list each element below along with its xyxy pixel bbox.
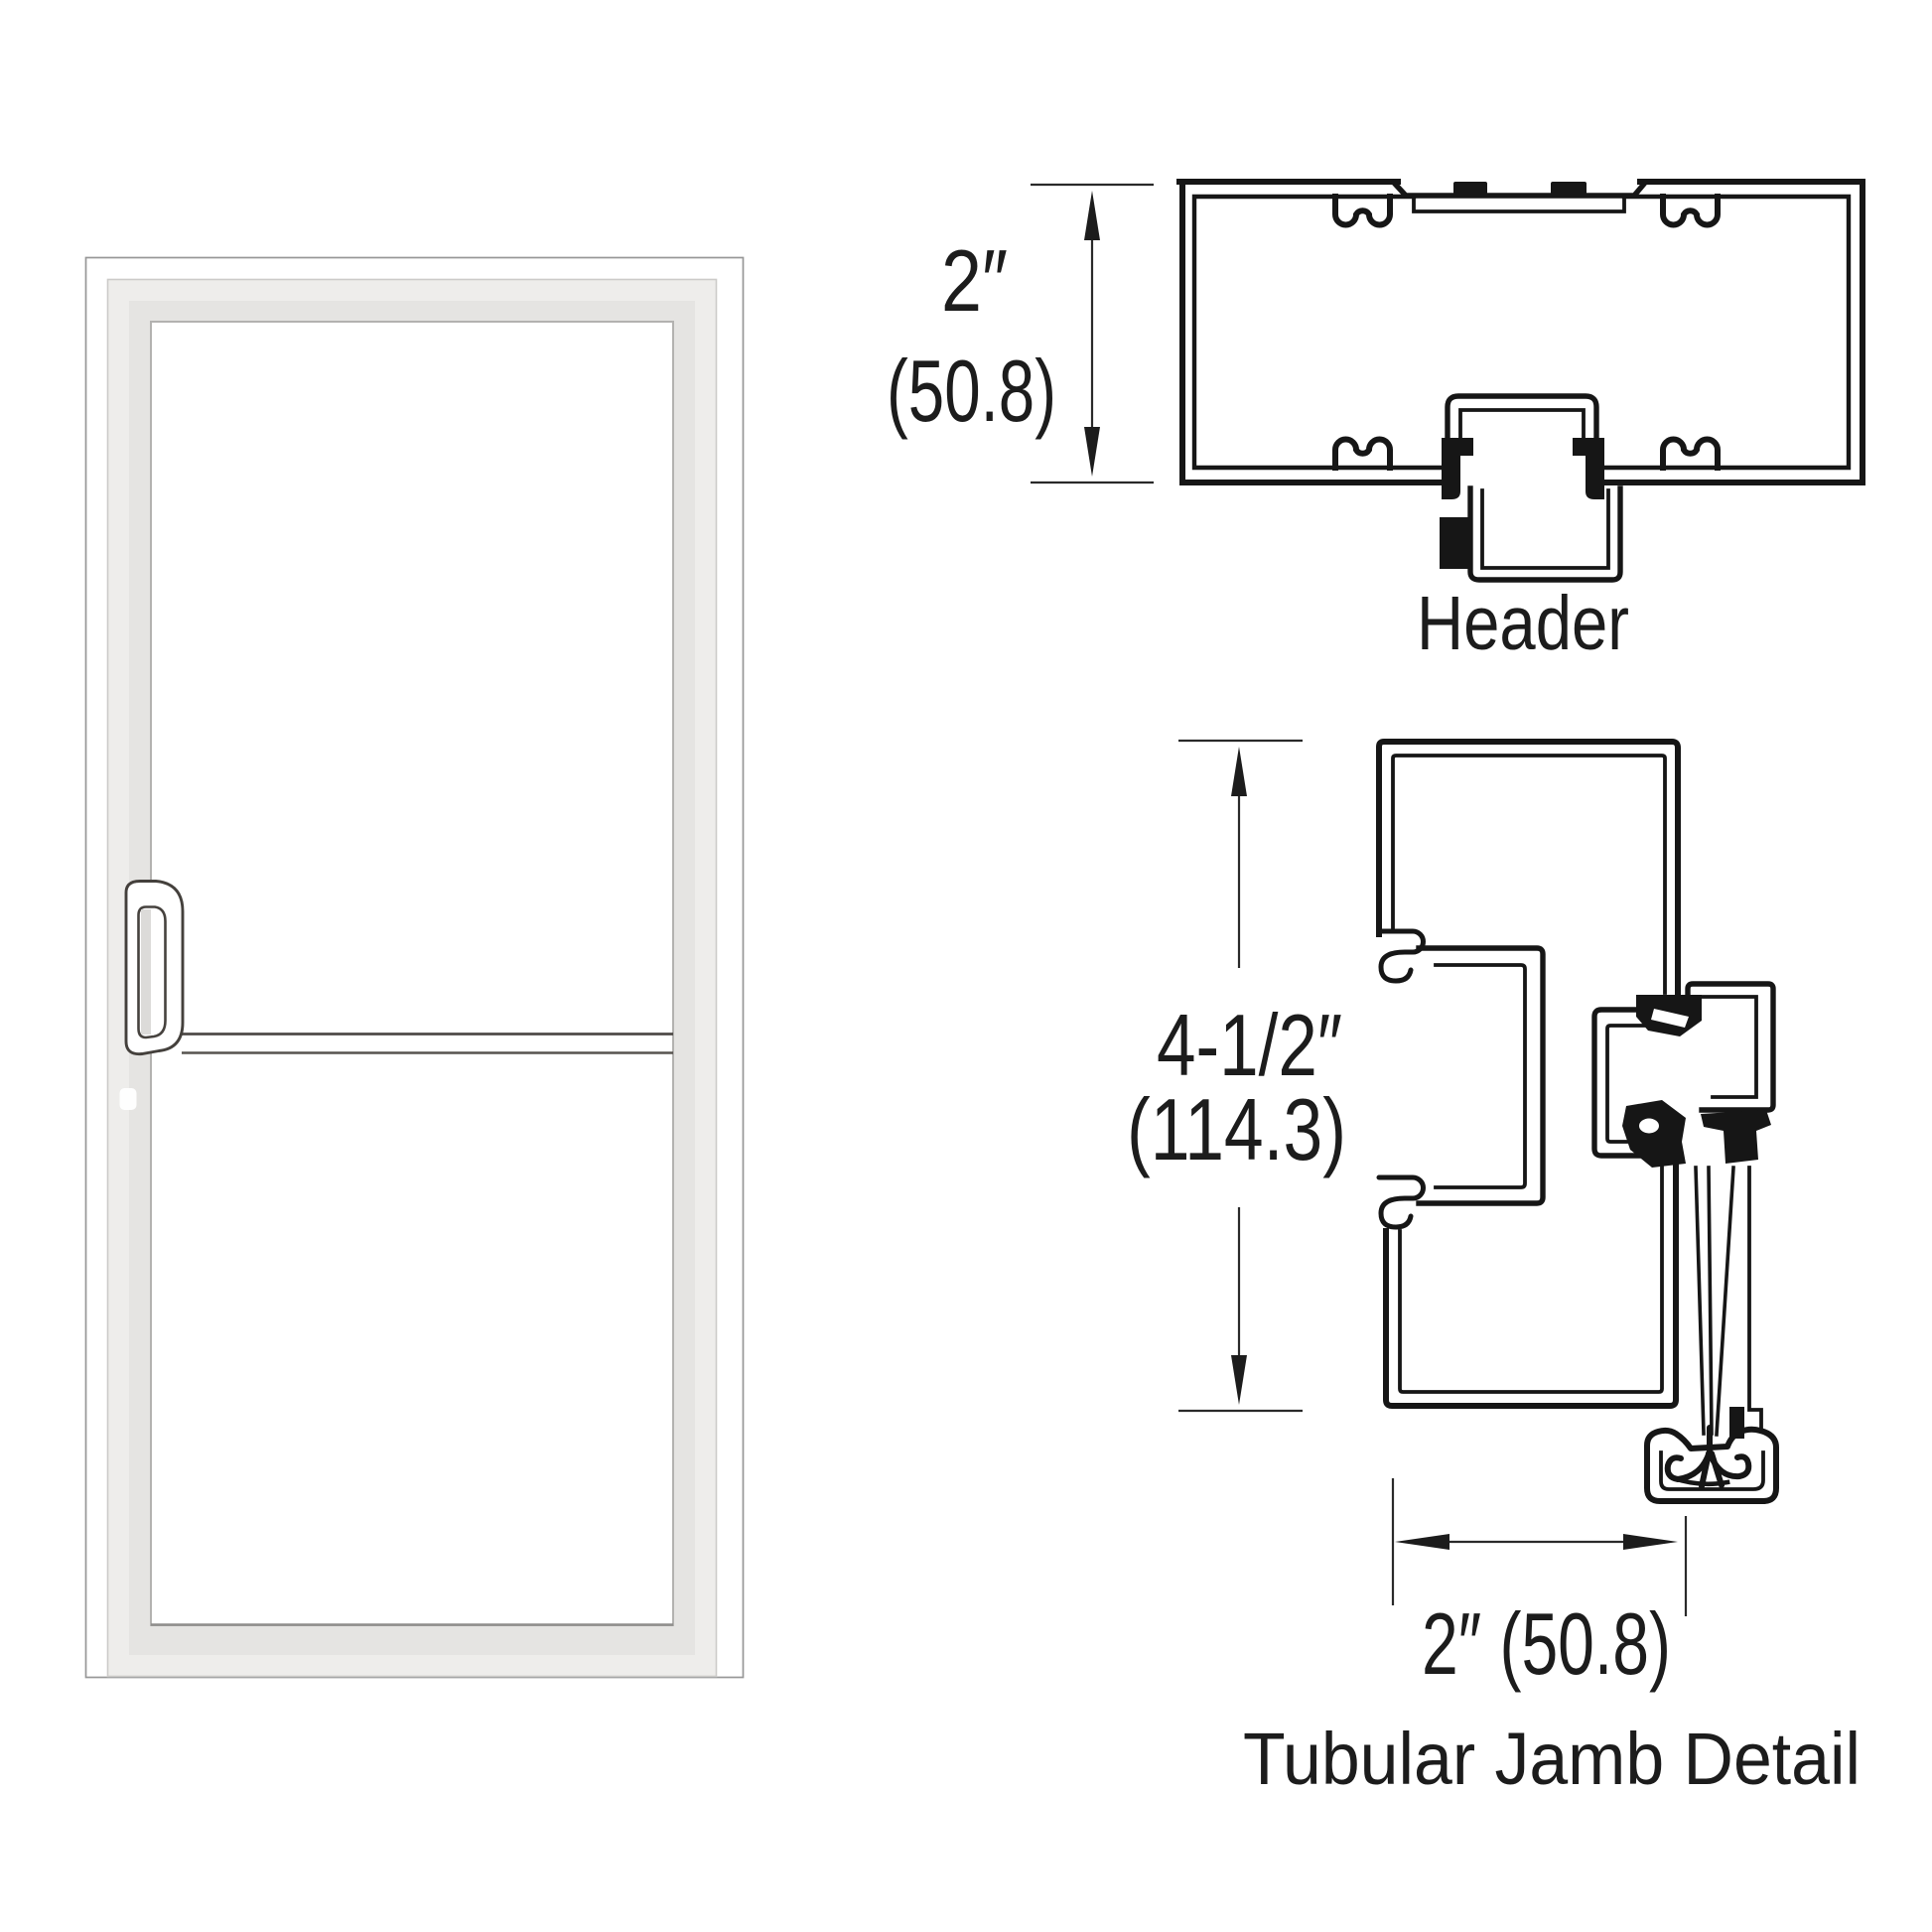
- svg-text:(114.3): (114.3): [1127, 1080, 1346, 1178]
- svg-text:2″: 2″: [941, 231, 1008, 330]
- svg-text:Header: Header: [1417, 581, 1629, 666]
- svg-text:2″ (50.8): 2″ (50.8): [1422, 1594, 1671, 1693]
- svg-text:Tubular Jamb Detail: Tubular Jamb Detail: [1243, 1718, 1861, 1800]
- svg-text:(50.8): (50.8): [887, 342, 1056, 440]
